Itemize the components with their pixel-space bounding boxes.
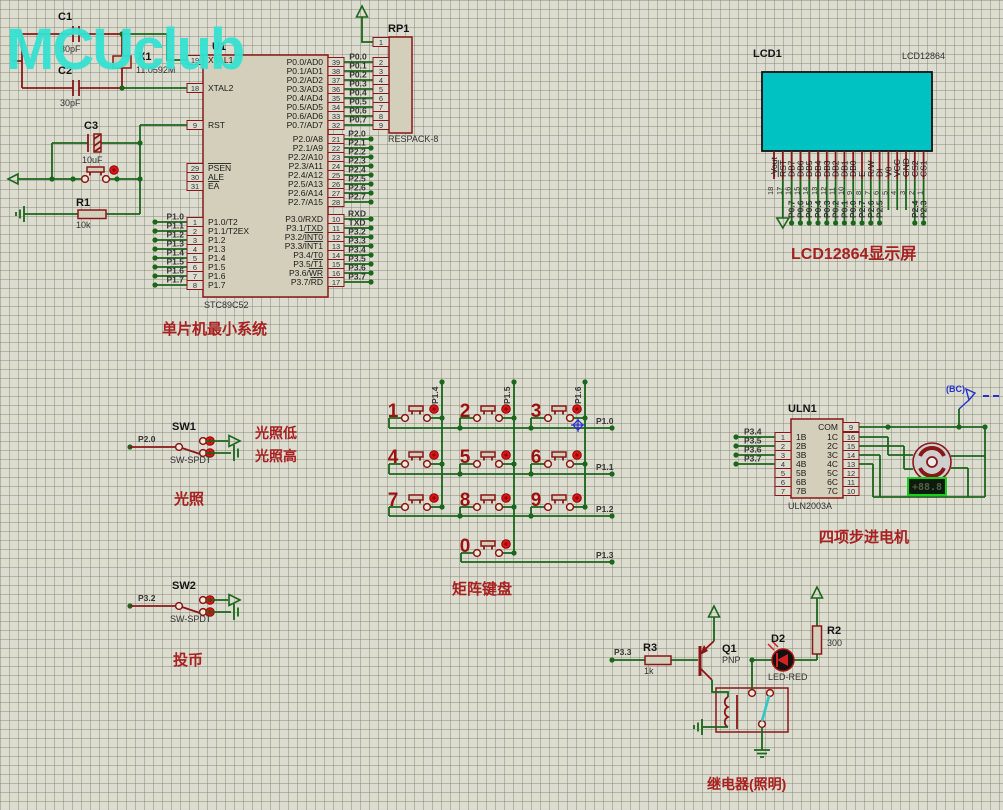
title-mcu-min-system: 单片机最小系统 — [162, 318, 267, 339]
keypad-key-label: 4 — [388, 447, 399, 468]
contact-terminal — [496, 550, 503, 557]
actuator-icon[interactable] — [430, 451, 439, 460]
pin-number: 15 — [847, 442, 855, 451]
contact-terminal — [176, 444, 183, 451]
part-value: LCD12864 — [902, 51, 945, 61]
wire — [754, 750, 770, 757]
title-matrix-keypad: 矩阵键盘 — [452, 578, 512, 599]
voltage-probe-bc[interactable]: (BC) — [946, 384, 1003, 427]
junction-dot — [807, 220, 812, 225]
part-value: STC89C52 — [204, 300, 249, 310]
title-relay-light: 继电器(照明) — [707, 774, 786, 794]
stepper-motor[interactable] — [913, 443, 951, 481]
keypad-key-label: 8 — [460, 490, 471, 511]
junction-dot — [877, 220, 882, 225]
contact-terminal — [496, 504, 503, 511]
keypad-key-label: 1 — [388, 401, 399, 422]
junction-dot — [842, 220, 847, 225]
wire — [16, 206, 24, 222]
keypad-key-label: 9 — [531, 490, 542, 511]
pin-number: 13 — [332, 242, 340, 251]
sw1-switch[interactable]: P2.0SW1SW-SPDT — [127, 421, 240, 465]
net-label: P3.3 — [614, 647, 632, 657]
junction-dot — [114, 176, 119, 181]
lcd-screen[interactable] — [762, 72, 932, 151]
net-label: P1.3 — [596, 550, 614, 560]
uln-chip[interactable]: 1B2B3B4B5B6B7BCOM1C2C3C4C5C6C7C — [791, 419, 843, 498]
junction-dot — [609, 425, 614, 430]
pin-number: 35 — [332, 94, 340, 103]
pin-number: 25 — [332, 171, 340, 180]
mcu-pin-name: P3.7/RD — [291, 277, 323, 287]
junction-dot — [119, 85, 124, 90]
pin-number: 6 — [781, 478, 785, 487]
contact-terminal — [545, 461, 552, 468]
pin-number: 4 — [781, 460, 785, 469]
keypad-key-3[interactable]: 3 — [531, 401, 585, 428]
junction-dot — [368, 154, 373, 159]
pin-number: 10 — [847, 487, 855, 496]
title-light: 光照 — [174, 488, 204, 509]
power-terminal-icon — [357, 6, 368, 17]
junction-dot — [582, 379, 587, 384]
pin-number: 22 — [332, 144, 340, 153]
net-label: P3.7 — [348, 272, 366, 282]
junction-dot — [49, 176, 54, 181]
pin-number: 11 — [847, 478, 855, 487]
net-label: P3.2 — [138, 593, 156, 603]
junction-dot — [609, 471, 614, 476]
pin-number: 4 — [193, 245, 197, 254]
junction-dot — [439, 379, 444, 384]
uln-pin-name: 7B — [796, 486, 807, 496]
lcd-pin-name: CS1 — [919, 160, 929, 177]
wire — [859, 455, 880, 497]
junction-dot — [859, 220, 864, 225]
schematic-layer: XTAL1XTAL2RSTPSENALEEAP1.0/T2P1.1/T2EXP1… — [0, 0, 1003, 810]
junction-dot — [368, 136, 373, 141]
junction-dot — [609, 513, 614, 518]
pin-number: 32 — [332, 121, 340, 130]
actuator-icon[interactable] — [430, 494, 439, 503]
junction-dot — [368, 199, 373, 204]
pin-number: 8 — [379, 112, 383, 121]
keypad-key-1[interactable]: 1 — [388, 401, 442, 428]
net-label: P2.3 — [919, 200, 929, 218]
keypad-key-4[interactable]: 4 — [388, 447, 442, 474]
junction-dot — [368, 243, 373, 248]
pin-number: 5 — [193, 254, 197, 263]
pin-number: 30 — [191, 173, 199, 182]
pin-number: 14 — [332, 251, 340, 260]
contact-terminal — [424, 461, 431, 468]
junction-dot — [439, 504, 444, 509]
wire — [859, 446, 913, 469]
junction-dot — [368, 252, 373, 257]
keypad-key-label: 0 — [460, 536, 471, 557]
keypad-key-label: 3 — [531, 401, 542, 422]
part-value: 10k — [76, 220, 91, 230]
actuator-icon[interactable] — [110, 166, 119, 175]
pin-number: 8 — [193, 281, 197, 290]
pin-number: 17 — [332, 278, 340, 287]
junction-dot — [733, 452, 738, 457]
part-value: RESPACK-8 — [388, 134, 438, 144]
pin-number: 31 — [191, 182, 199, 191]
pin-number: 29 — [191, 164, 199, 173]
pin-number: 3 — [193, 236, 197, 245]
part-value: LED-RED — [768, 672, 808, 682]
junction-dot — [798, 220, 803, 225]
part-ref: RP1 — [388, 23, 409, 35]
wire-stub — [182, 448, 200, 454]
pin-number: 3 — [781, 451, 785, 460]
junction-dot — [368, 172, 373, 177]
input-terminal-icon — [8, 174, 18, 184]
junction-dot — [582, 461, 587, 466]
part-value: SW-SPDT — [170, 614, 212, 624]
junction-dot — [789, 220, 794, 225]
net-label: P1.1 — [596, 462, 614, 472]
part-ref: ULN1 — [788, 403, 817, 415]
rp1-respack[interactable]: RP1RESPACK-81 — [357, 6, 439, 144]
junction-dot — [885, 424, 890, 429]
ground-terminal-icon — [777, 218, 789, 228]
contact-terminal — [424, 504, 431, 511]
junction-dot — [368, 190, 373, 195]
pin-number: 7 — [379, 103, 383, 112]
part-ref: Q1 — [722, 643, 737, 655]
pin-number: 16 — [332, 269, 340, 278]
pin-number: 6 — [379, 94, 383, 103]
junction-dot — [368, 163, 373, 168]
net-label: P0.7 — [349, 115, 367, 125]
net-label: P1.5 — [502, 386, 512, 404]
motor-rpm-value: +88.8 — [912, 482, 942, 493]
pin-number: 7 — [781, 487, 785, 496]
pin-number: 15 — [332, 260, 340, 269]
keypad-key-9[interactable]: 9 — [531, 490, 585, 516]
title-coin: 投币 — [173, 649, 203, 670]
actuator-icon[interactable] — [430, 405, 439, 414]
net-label: P1.4 — [430, 386, 440, 404]
part-ref: SW1 — [172, 421, 196, 433]
part-value: SW-SPDT — [170, 455, 212, 465]
probe-label: (BC) — [946, 384, 965, 394]
mcu-chip[interactable]: XTAL1XTAL2RSTPSENALEEAP1.0/T2P1.1/T2EXP1… — [203, 55, 328, 297]
wire — [951, 468, 968, 497]
pin-number: 34 — [332, 103, 340, 112]
actuator-icon[interactable] — [573, 451, 582, 460]
junction-dot — [582, 415, 587, 420]
part-ref: SW2 — [172, 580, 196, 592]
resistor-r1[interactable] — [78, 210, 106, 219]
contact-terminal — [767, 690, 774, 697]
contact-terminal — [474, 461, 481, 468]
junction-dot — [368, 225, 373, 230]
relay-coil — [725, 697, 728, 727]
sw2-switch[interactable]: P3.2SW2SW-SPDT — [127, 580, 240, 624]
mcu-pin-name: XTAL2 — [208, 83, 234, 93]
wire — [140, 125, 187, 214]
pin-number: 26 — [332, 180, 340, 189]
mcu-pin-name: RST — [208, 120, 225, 130]
contact-terminal — [402, 504, 409, 511]
keypad-key-5[interactable]: 5 — [460, 447, 514, 474]
label-light-low: 光照低 — [255, 423, 297, 443]
watermark-logo: MCUclub — [6, 16, 243, 83]
junction-dot — [921, 220, 926, 225]
junction-dot — [851, 220, 856, 225]
power-terminal-icon — [229, 436, 240, 447]
net-label: P1.7 — [167, 275, 185, 285]
contact-terminal — [545, 504, 552, 511]
mcu-pin-name: EA — [208, 181, 220, 191]
part-value: ULN2003A — [788, 501, 832, 511]
contact-terminal — [402, 461, 409, 468]
pin-number: 2 — [781, 442, 785, 451]
net-label: P2.0 — [138, 434, 156, 444]
part-ref: C3 — [84, 120, 98, 132]
pin-number: 1 — [193, 218, 197, 227]
part-value: 300 — [827, 638, 842, 648]
part-ref: R2 — [827, 625, 841, 637]
lcd-pin-number: 18 — [766, 187, 775, 195]
wire — [694, 719, 702, 735]
actuator-icon[interactable] — [573, 494, 582, 503]
net-label: P2.5 — [875, 200, 885, 218]
pin-number: 9 — [849, 423, 853, 432]
contact-terminal — [402, 415, 409, 422]
contact-terminal — [424, 415, 431, 422]
pin-number: 9 — [379, 121, 383, 130]
pin-number: 2 — [193, 227, 197, 236]
junction-dot — [824, 220, 829, 225]
junction-dot — [511, 504, 516, 509]
pin-number: 13 — [847, 460, 855, 469]
pin-number: 3 — [379, 67, 383, 76]
pin-number: 7 — [193, 272, 197, 281]
junction-dot — [815, 220, 820, 225]
junction-dot — [368, 181, 373, 186]
relay-blade — [762, 696, 769, 721]
part-value: 1k — [644, 666, 654, 676]
pin-number: 23 — [332, 153, 340, 162]
keypad-key-label: 6 — [531, 447, 542, 468]
actuator-icon[interactable] — [502, 451, 511, 460]
net-label: P3.7 — [744, 454, 762, 464]
contact-terminal — [474, 550, 481, 557]
stepper-section: 1B2B3B4B5B6B7BCOM1C2C3C4C5C6C7CULN1ULN20… — [733, 384, 1003, 511]
pin-number: 1 — [781, 433, 785, 442]
junction-dot — [912, 220, 917, 225]
net-label: P1.0 — [596, 416, 614, 426]
resistor-r3[interactable] — [645, 656, 671, 665]
junction-dot — [70, 176, 75, 181]
contact-terminal — [749, 690, 756, 697]
part-ref: R1 — [76, 197, 90, 209]
mcu-pin-name: P0.7/AD7 — [287, 120, 324, 130]
junction-dot — [582, 504, 587, 509]
part-ref: R3 — [643, 642, 657, 654]
mcu-pin-name: P2.7/A15 — [288, 197, 323, 207]
pin-number: 12 — [332, 233, 340, 242]
pin-number: 5 — [781, 469, 785, 478]
contact-terminal — [103, 176, 110, 183]
lcd-section: LCD1LCD12864-Vout18RST17DB716P0.7DB615P0… — [753, 48, 945, 228]
power-terminal-icon — [229, 595, 240, 606]
junction-dot — [368, 216, 373, 221]
transistor-q1[interactable] — [700, 606, 720, 680]
junction-dot — [511, 379, 516, 384]
uln-pin-name: COM — [818, 422, 838, 432]
keypad-key-2[interactable]: 2 — [460, 401, 514, 428]
pin-number: 11 — [332, 224, 340, 233]
junction-dot — [439, 415, 444, 420]
mcu-pin-name: P1.7 — [208, 280, 226, 290]
pin-number: 33 — [332, 112, 340, 121]
wire-stub — [182, 607, 200, 613]
wire — [362, 17, 373, 42]
junction-dot — [368, 261, 373, 266]
keypad-key-6[interactable]: 6 — [531, 447, 585, 474]
wire — [234, 604, 238, 620]
title-stepper-motor: 四项步进电机 — [819, 526, 909, 547]
pin-number: 16 — [847, 433, 855, 442]
power-terminal-icon — [709, 606, 720, 617]
pin-number: 39 — [332, 58, 340, 67]
pin-number: 36 — [332, 85, 340, 94]
junction-dot — [749, 657, 754, 662]
pin-number: 2 — [379, 58, 383, 67]
pin-number: 10 — [332, 215, 340, 224]
pin-number: 27 — [332, 189, 340, 198]
keypad-key-7[interactable]: 7 — [388, 490, 442, 516]
junction-dot — [733, 461, 738, 466]
actuator-icon[interactable] — [502, 540, 511, 549]
pin-number: 9 — [193, 121, 197, 130]
junction-dot — [368, 145, 373, 150]
pin-number: 12 — [847, 469, 855, 478]
keypad-key-0[interactable]: 0 — [460, 536, 514, 562]
pin-number: 28 — [332, 198, 340, 207]
contact-terminal — [176, 603, 183, 610]
contact-terminal — [567, 504, 574, 511]
pin-number: 5 — [379, 85, 383, 94]
part-ref: LCD1 — [753, 48, 782, 60]
uln-pin-name: 7C — [827, 486, 838, 496]
pin-number: 4 — [379, 76, 383, 85]
junction-dot — [733, 434, 738, 439]
pin-number: 38 — [332, 67, 340, 76]
keypad-section: P1.4P1.5P1.6P1.0P1.1P1.2P1.31234567890 — [388, 379, 615, 564]
label-light-high: 光照高 — [255, 446, 297, 466]
part-value: PNP — [722, 655, 741, 665]
pin-number: 14 — [847, 451, 855, 460]
keypad-key-label: 2 — [460, 401, 471, 422]
power-terminal-icon — [812, 587, 823, 598]
keypad-key-8[interactable]: 8 — [460, 490, 514, 516]
contact-terminal — [474, 504, 481, 511]
contact-terminal — [567, 461, 574, 468]
pin-number: 24 — [332, 162, 340, 171]
contact-terminal — [759, 721, 766, 728]
keypad-key-label: 7 — [388, 490, 399, 511]
junction-dot — [982, 424, 987, 429]
net-label: P1.6 — [573, 386, 583, 404]
contact-terminal — [545, 415, 552, 422]
junction-dot — [511, 550, 516, 555]
actuator-icon[interactable] — [502, 494, 511, 503]
junction-dot — [511, 415, 516, 420]
junction-dot — [511, 461, 516, 466]
wire-stub — [700, 641, 714, 680]
pin-number: 18 — [191, 84, 199, 93]
contact-terminal — [496, 415, 503, 422]
contact-terminal — [567, 415, 574, 422]
pin-number: 6 — [193, 263, 197, 272]
junction-dot — [833, 220, 838, 225]
wire — [234, 445, 238, 461]
part-value: 10uF — [82, 155, 103, 165]
actuator-icon[interactable] — [573, 405, 582, 414]
junction-dot — [368, 234, 373, 239]
contact-terminal — [496, 461, 503, 468]
resistor-r2[interactable] — [813, 626, 822, 654]
junction-dot — [609, 559, 614, 564]
pin-number: 21 — [332, 135, 340, 144]
junction-dot — [868, 220, 873, 225]
junction-dot — [439, 461, 444, 466]
part-ref: D2 — [771, 633, 785, 645]
title-lcd12864: LCD12864显示屏 — [791, 240, 916, 264]
wire — [859, 464, 873, 497]
part-value: 30pF — [60, 98, 81, 108]
pin-number: 1 — [379, 38, 383, 47]
led-d2[interactable] — [752, 641, 817, 671]
net-label: P1.2 — [596, 504, 614, 514]
schematic-canvas: XTAL1XTAL2RSTPSENALEEAP1.0/T2P1.1/T2EXP1… — [0, 0, 1003, 810]
keypad-key-label: 5 — [460, 447, 471, 468]
contact-terminal — [474, 415, 481, 422]
junction-dot — [368, 279, 373, 284]
junction-dot — [733, 443, 738, 448]
contact-terminal — [82, 176, 89, 183]
junction-dot — [368, 270, 373, 275]
pin-number: 37 — [332, 76, 340, 85]
actuator-icon[interactable] — [502, 405, 511, 414]
relay-section: P3.3R31kQ1PNPD2LED-REDR2300 — [609, 587, 842, 757]
net-label: P2.7 — [348, 192, 366, 202]
